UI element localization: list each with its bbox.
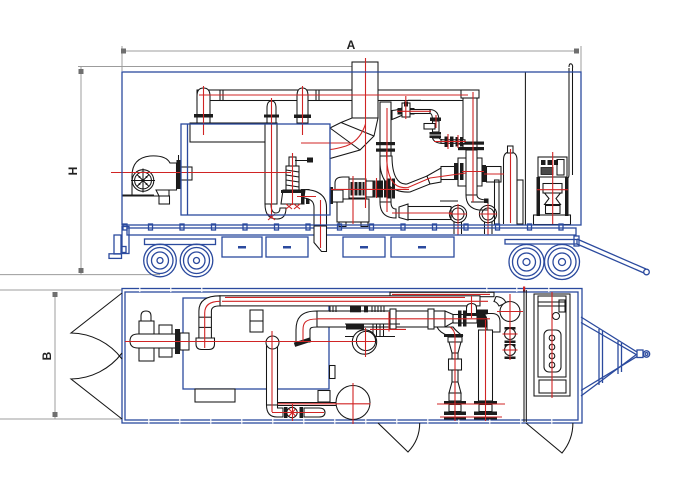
svg-text:H: H bbox=[66, 167, 80, 176]
svg-text:B: B bbox=[40, 351, 54, 360]
svg-text:A: A bbox=[347, 38, 356, 52]
